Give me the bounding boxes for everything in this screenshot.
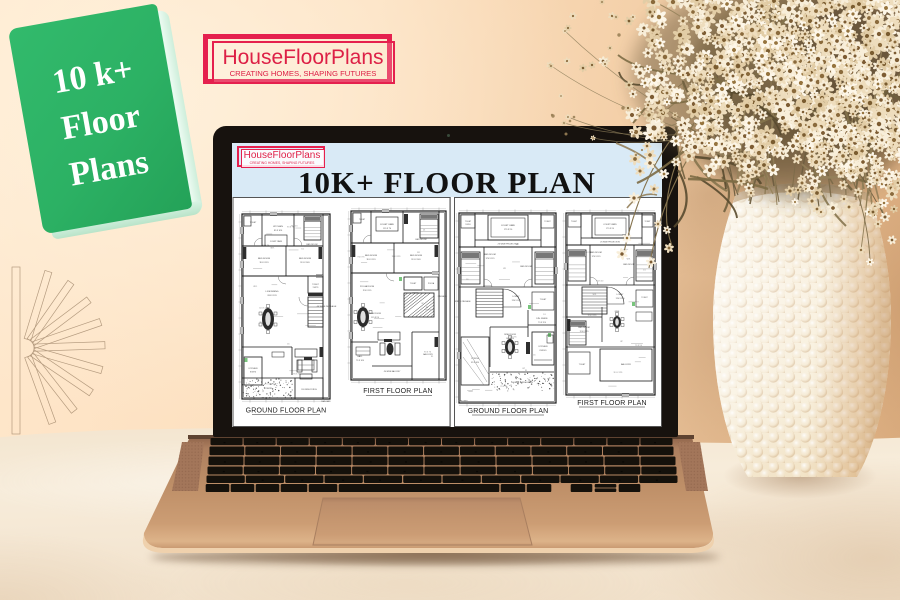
svg-text:11'0 X 12'0: 11'0 X 12'0 (580, 331, 589, 333)
svg-text:10'0 X 9'0: 10'0 X 9'0 (506, 338, 514, 340)
svg-text:TOILET: TOILET (579, 364, 586, 366)
svg-text:LOBBY: LOBBY (513, 296, 521, 298)
svg-text:D1: D1 (287, 343, 289, 345)
svg-text:FIRST FLOOR PLAN: FIRST FLOOR PLAN (577, 400, 647, 407)
svg-text:COURT YARD: COURT YARD (380, 223, 395, 226)
svg-text:TOILET: TOILET (359, 219, 366, 221)
svg-text:11'0 X 9'0: 11'0 X 9'0 (371, 317, 379, 319)
svg-text:BED ROOM: BED ROOM (578, 327, 590, 329)
svg-text:W1: W1 (417, 252, 420, 254)
svg-text:7'6 X 10'0: 7'6 X 10'0 (356, 360, 364, 362)
svg-text:BED ROOM: BED ROOM (484, 254, 496, 256)
svg-text:GROUND FLOOR PLAN: GROUND FLOOR PLAN (246, 408, 327, 415)
svg-text:BED ROOM: BED ROOM (299, 258, 311, 260)
svg-text:DINE ROOM: DINE ROOM (369, 313, 381, 315)
svg-text:KITCHEN: KITCHEN (539, 346, 548, 348)
svg-text:BALCONY: BALCONY (423, 353, 433, 356)
svg-text:8'0X9'6: 8'0X9'6 (250, 372, 256, 374)
svg-text:7'0 X 11'0: 7'0 X 11'0 (538, 322, 546, 324)
svg-text:11'0 X 10'0: 11'0 X 10'0 (411, 259, 420, 261)
svg-text:MAIN GATE: MAIN GATE (321, 400, 331, 403)
svg-text:BALCONY: BALCONY (621, 363, 632, 366)
svg-text:MAIN GATE: MAIN GATE (458, 400, 468, 403)
svg-text:D1: D1 (431, 356, 433, 358)
svg-text:BED ROOM: BED ROOM (307, 244, 318, 246)
svg-text:BED ROOM: BED ROOM (410, 255, 422, 257)
svg-text:D1: D1 (301, 248, 303, 250)
svg-text:8'0 X 10'6: 8'0 X 10'6 (274, 230, 282, 232)
svg-text:TOILET: TOILET (410, 283, 417, 285)
svg-text:5'0X7'6: 5'0X7'6 (313, 287, 319, 289)
svg-text:2'6 WIDE PROJECTION: 2'6 WIDE PROJECTION (498, 244, 519, 246)
svg-text:7'6 X 5'0: 7'6 X 5'0 (500, 386, 507, 388)
svg-text:TOILET: TOILET (465, 221, 472, 223)
svg-text:W.R.: W.R. (271, 248, 275, 250)
svg-text:11'0 X 10'0: 11'0 X 10'0 (300, 262, 309, 264)
svg-text:PASSAGE: PASSAGE (438, 295, 448, 298)
svg-text:PORCH: PORCH (264, 388, 272, 390)
svg-text:KITCHEN: KITCHEN (249, 368, 258, 370)
svg-text:5'0 WIDE PORCH LAWN: 5'0 WIDE PORCH LAWN (511, 381, 533, 384)
svg-text:8'0X10'0: 8'0X10'0 (540, 350, 547, 352)
svg-text:D1: D1 (533, 355, 535, 357)
svg-text:D1: D1 (423, 229, 425, 231)
svg-text:POOJA ROOM: POOJA ROOM (360, 285, 374, 288)
svg-text:GROUND FLOOR PLAN: GROUND FLOOR PLAN (468, 408, 549, 415)
svg-text:11'0 X 11'0: 11'0 X 11'0 (363, 290, 372, 292)
svg-text:20'6 X 12'0: 20'6 X 12'0 (267, 295, 276, 297)
svg-text:11'0 X 11'0: 11'0 X 11'0 (259, 262, 268, 264)
svg-text:20'0 WIDE PORCH: 20'0 WIDE PORCH (301, 389, 317, 391)
svg-text:5'0X5'0: 5'0X5'0 (465, 224, 470, 226)
svg-text:11'0 X 12'6: 11'0 X 12'6 (613, 372, 622, 374)
svg-text:11'0 X 11'0: 11'0 X 11'0 (366, 259, 375, 261)
svg-text:COURT YARD: COURT YARD (501, 224, 516, 227)
svg-text:12'0 X 11'0: 12'0 X 11'0 (486, 258, 495, 260)
svg-text:4'0 WIDE BALCONY: 4'0 WIDE BALCONY (384, 370, 401, 373)
svg-text:13'0 X 11'0: 13'0 X 11'0 (512, 300, 521, 302)
svg-text:TOILET: TOILET (250, 222, 257, 224)
svg-text:COURT YARD: COURT YARD (270, 240, 283, 243)
svg-text:11'0 X 7'0: 11'0 X 7'0 (383, 228, 391, 230)
svg-text:LIVE/DINING: LIVE/DINING (265, 291, 278, 293)
svg-text:9'0 X 7'6: 9'0 X 7'6 (293, 374, 300, 376)
svg-text:TOILET: TOILET (312, 284, 319, 286)
svg-text:FIRST FLOOR PLAN: FIRST FLOOR PLAN (363, 388, 433, 395)
svg-text:9'0 X 7'6: 9'0 X 7'6 (358, 257, 365, 259)
svg-text:BED ROOM: BED ROOM (258, 258, 270, 260)
svg-text:BED ROOM: BED ROOM (365, 255, 377, 257)
svg-text:W.R.: W.R. (253, 286, 257, 288)
svg-text:BED ROOM: BED ROOM (520, 266, 532, 268)
svg-text:9'0 X 7'6: 9'0 X 7'6 (287, 226, 294, 228)
svg-text:W1: W1 (503, 268, 506, 270)
svg-text:BED ROOM: BED ROOM (416, 239, 427, 241)
svg-text:HALL: HALL (357, 355, 363, 358)
svg-text:40 WIDE PASSAGE: 40 WIDE PASSAGE (317, 305, 337, 308)
svg-text:11'0 X 12'6: 11'0 X 12'6 (392, 256, 401, 258)
svg-text:POOJA: POOJA (428, 282, 435, 285)
svg-text:D1: D1 (466, 279, 468, 281)
svg-text:DINE ROOM: DINE ROOM (504, 334, 516, 336)
svg-text:KITCHEN: KITCHEN (273, 226, 283, 228)
svg-text:17'0 X 9'0: 17'0 X 9'0 (504, 229, 512, 231)
svg-text:40 WIDE PASSAGE: 40 WIDE PASSAGE (454, 300, 471, 303)
